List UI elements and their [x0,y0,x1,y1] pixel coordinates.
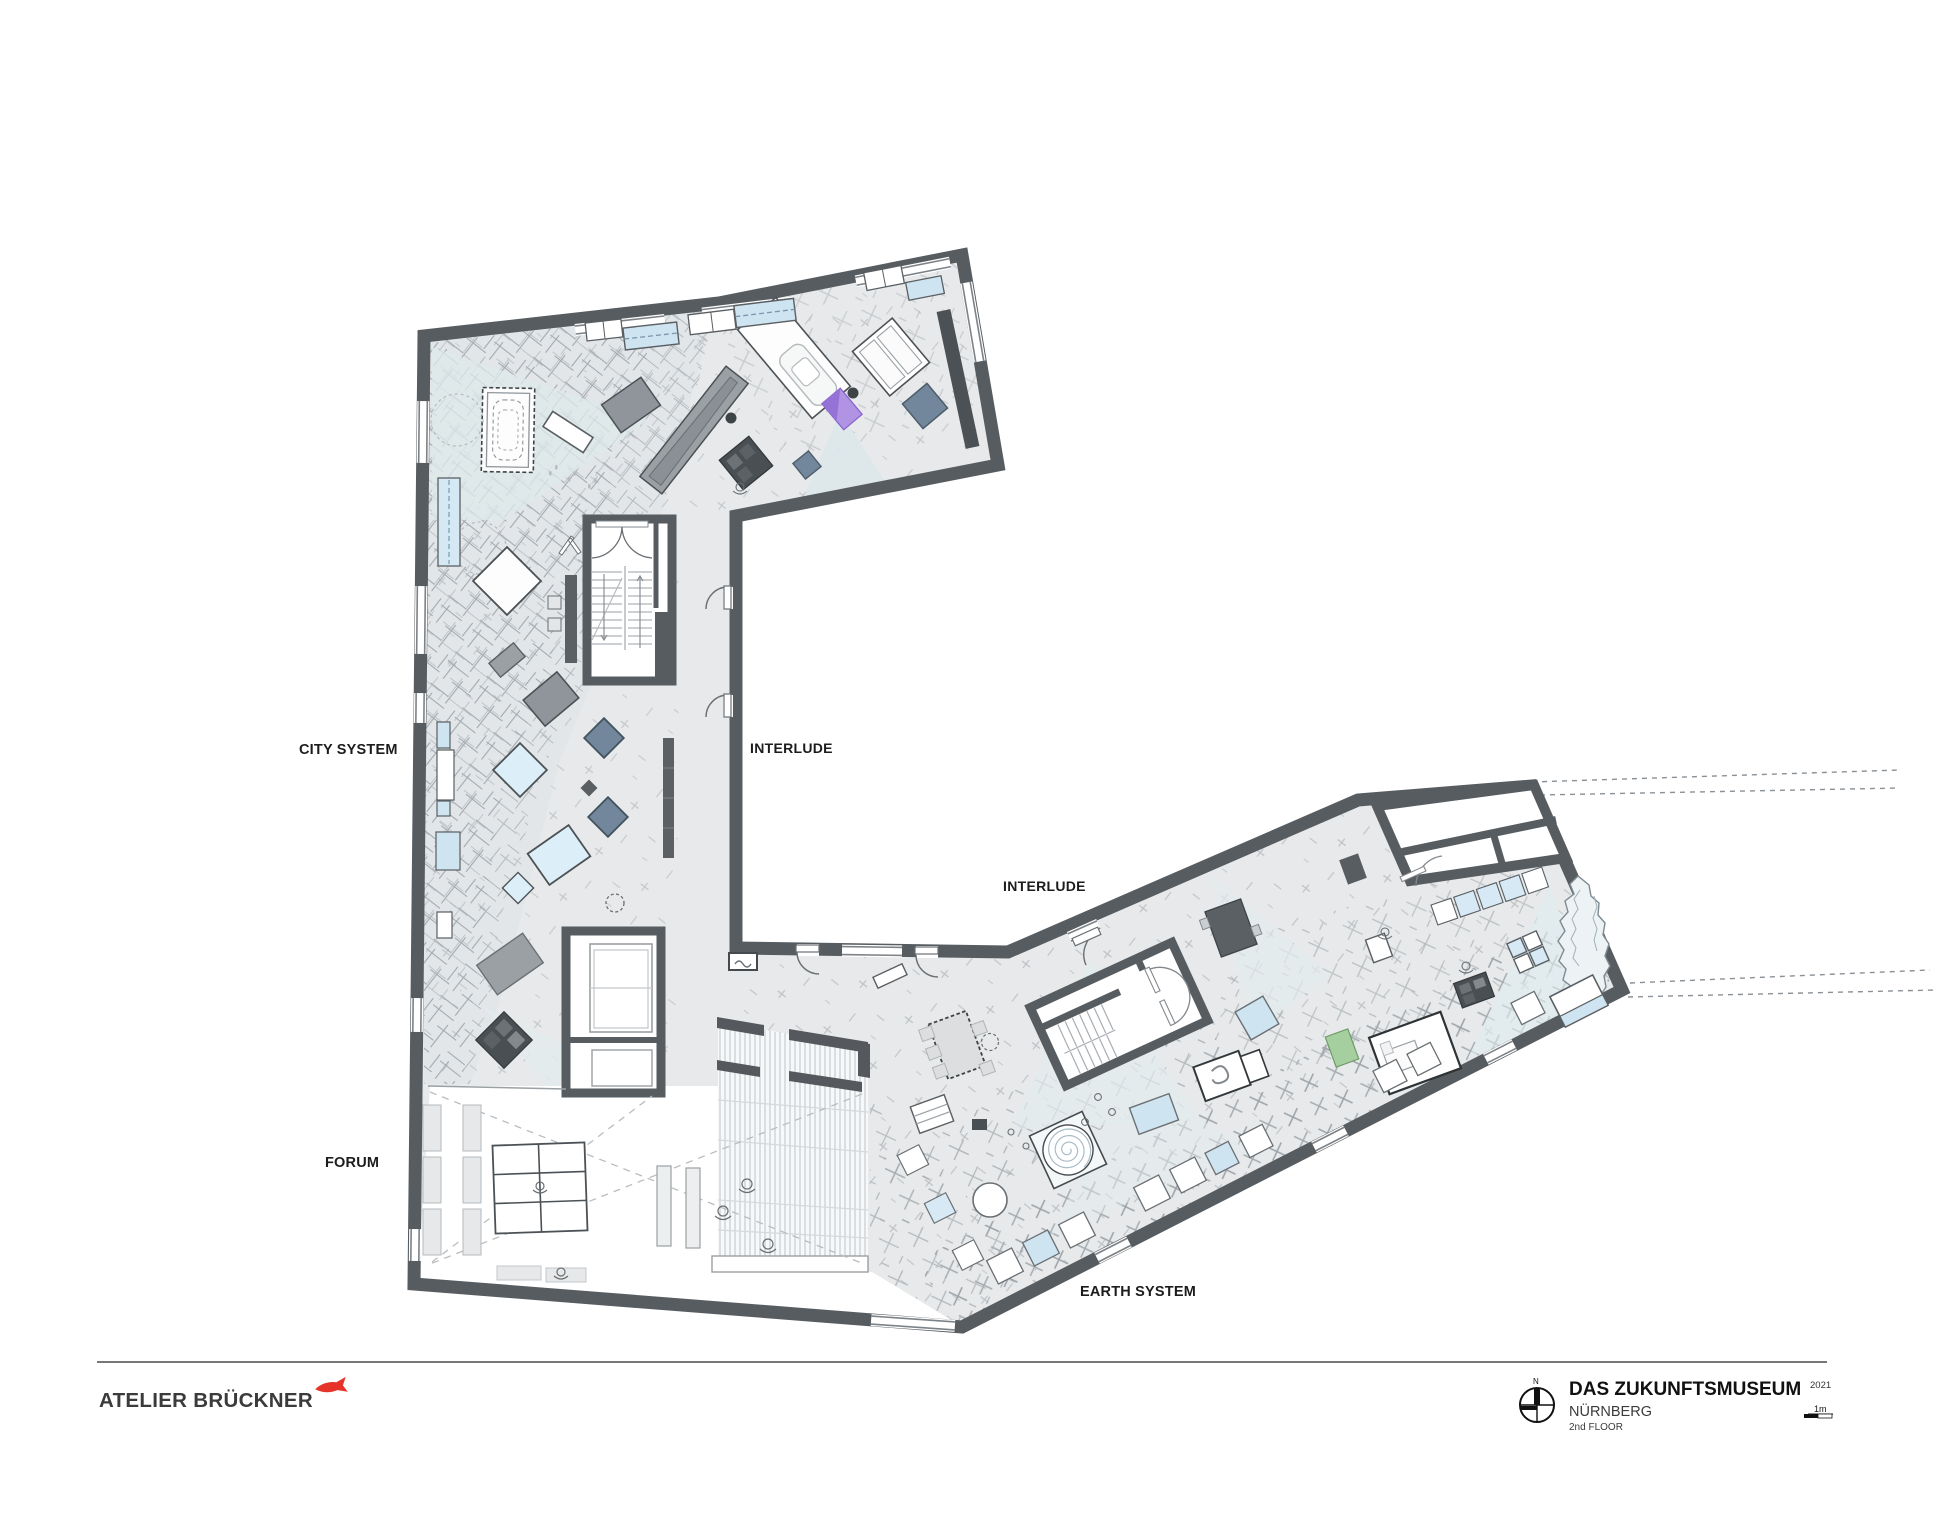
svg-text:2021: 2021 [1810,1380,1831,1391]
svg-text:FORUM: FORUM [325,1155,379,1171]
svg-text:N: N [1533,1377,1539,1386]
svg-text:INTERLUDE: INTERLUDE [1003,878,1086,894]
svg-text:DAS ZUKUNFTSMUSEUM: DAS ZUKUNFTSMUSEUM [1569,1379,1801,1400]
svg-text:2nd FLOOR: 2nd FLOOR [1569,1422,1623,1433]
svg-text:1m: 1m [1814,1404,1827,1414]
svg-text:ATELIER BRÜCKNER: ATELIER BRÜCKNER [99,1389,313,1412]
svg-text:INTERLUDE: INTERLUDE [750,740,833,756]
svg-text:NÜRNBERG: NÜRNBERG [1569,1402,1652,1420]
svg-text:EARTH SYSTEM: EARTH SYSTEM [1080,1284,1196,1300]
svg-text:CITY SYSTEM: CITY SYSTEM [299,742,398,758]
